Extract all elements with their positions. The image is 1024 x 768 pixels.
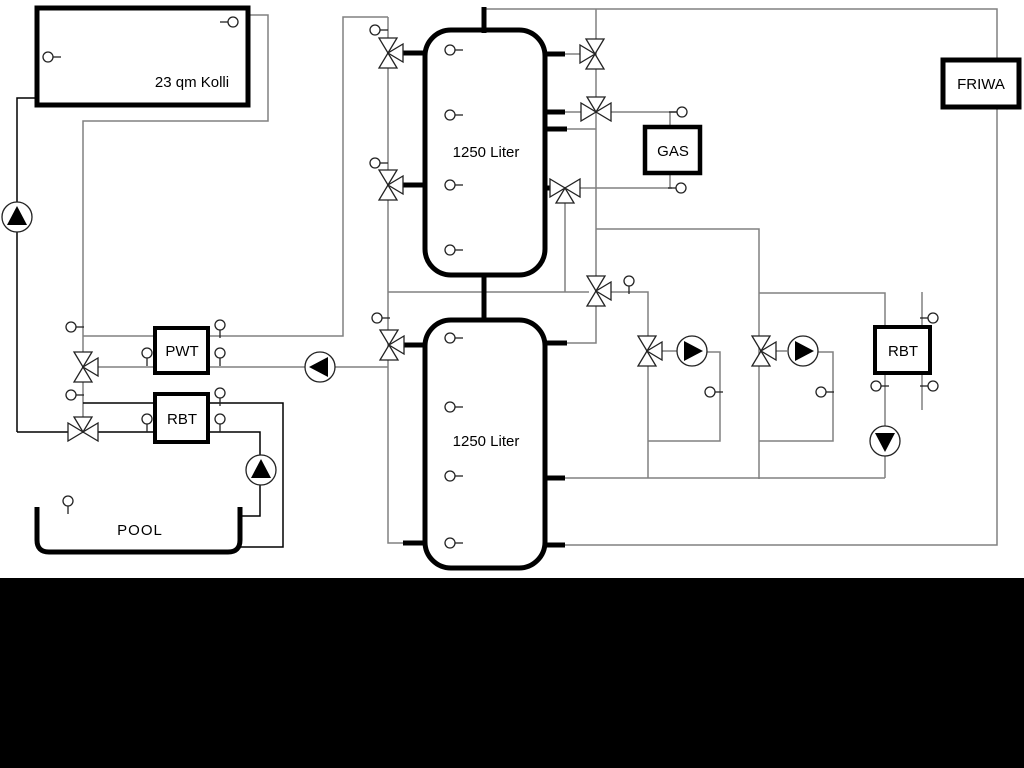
gas-label: GAS — [657, 143, 689, 160]
heating-schematic-diagram: 23 qm Kolli 1250 Liter 1250 Liter PWT RB… — [0, 0, 1024, 768]
collector-label: 23 qm Kolli — [155, 74, 229, 91]
pipes-black — [17, 98, 283, 547]
pipe-gas-return — [565, 174, 672, 292]
temperature-sensor-icon — [669, 107, 687, 117]
temperature-sensor-icon — [66, 390, 84, 400]
temperature-sensor-icon — [66, 322, 84, 332]
pwt-label: PWT — [165, 343, 198, 360]
rbt-left-label: RBT — [167, 411, 197, 428]
pipe-tank-left-main — [388, 17, 403, 543]
friwa-label: FRIWA — [957, 76, 1005, 93]
temperature-sensor-icon — [215, 348, 225, 366]
tank-top-label: 1250 Liter — [453, 144, 520, 161]
black-footer-band — [0, 578, 1024, 768]
temperature-sensor-icon — [215, 414, 225, 432]
temperature-sensor-icon — [370, 158, 388, 168]
pipe-solar-flow — [17, 98, 37, 432]
pool-label: POOL — [117, 522, 163, 539]
pipe-pool-flow — [17, 432, 260, 516]
temperature-sensor-icon — [63, 496, 73, 514]
temperature-sensor-icon — [816, 387, 834, 397]
schematic-page: 23 qm Kolli 1250 Liter 1250 Liter PWT RB… — [0, 0, 1024, 768]
pipe-friwa-loop — [484, 9, 997, 545]
boxes — [37, 8, 1019, 568]
temperature-sensor-icon — [142, 414, 152, 432]
temperature-sensor-icon — [142, 348, 152, 366]
pipe-circuit1 — [611, 292, 720, 478]
tank-bottom-label: 1250 Liter — [453, 433, 520, 450]
pipe-rbt-right — [759, 293, 885, 478]
temperature-sensor-icon — [871, 381, 889, 391]
temperature-sensor-icon — [370, 25, 388, 35]
rbt-right-label: RBT — [888, 343, 918, 360]
